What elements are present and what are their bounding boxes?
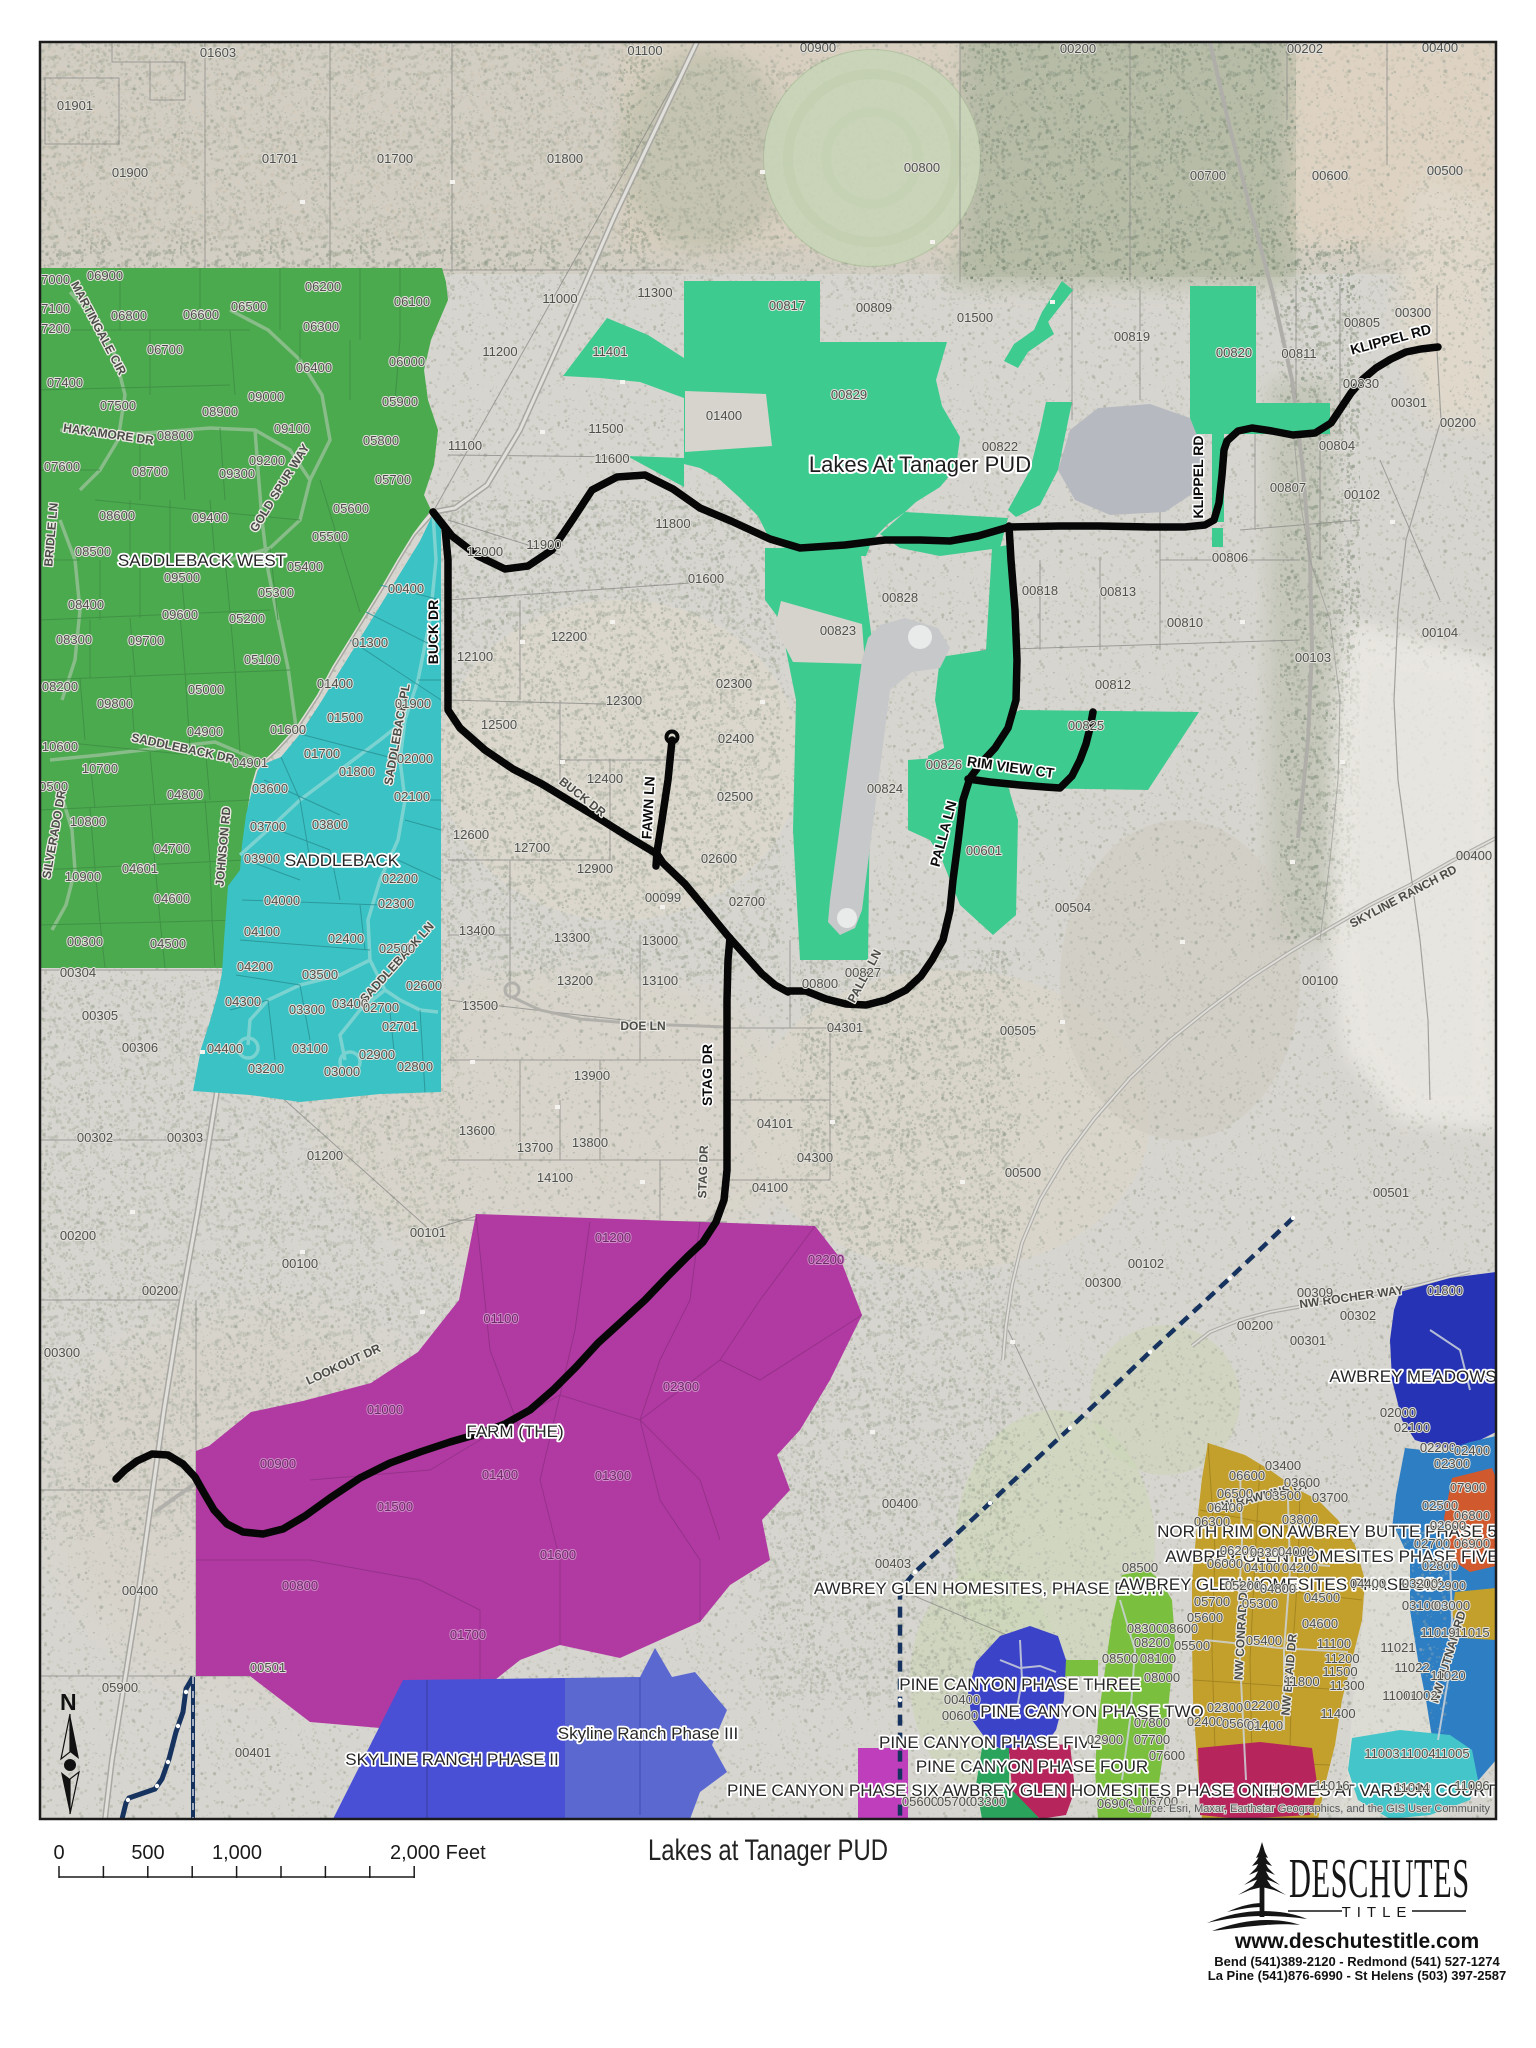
- svg-text:04700: 04700: [154, 841, 190, 856]
- svg-text:01603: 01603: [200, 45, 236, 60]
- svg-text:08900: 08900: [202, 404, 238, 419]
- svg-text:Lakes at Tanager PUD: Lakes at Tanager PUD: [648, 1834, 888, 1867]
- svg-text:01701: 01701: [262, 151, 298, 166]
- svg-text:00500: 00500: [1427, 163, 1463, 178]
- svg-text:00826: 00826: [926, 757, 962, 772]
- svg-text:01100: 01100: [483, 1311, 518, 1326]
- svg-text:12900: 12900: [577, 861, 613, 876]
- svg-text:02400: 02400: [1454, 1443, 1490, 1458]
- svg-text:03700: 03700: [250, 819, 286, 834]
- svg-text:05900: 05900: [102, 1680, 138, 1695]
- svg-text:08800: 08800: [157, 428, 193, 443]
- svg-text:05500: 05500: [312, 529, 348, 544]
- svg-text:04500: 04500: [1304, 1590, 1340, 1605]
- svg-text:10500: 10500: [32, 779, 68, 794]
- svg-text:00306: 00306: [122, 1040, 158, 1055]
- svg-text:13600: 13600: [459, 1123, 495, 1138]
- svg-text:07800: 07800: [1134, 1715, 1170, 1730]
- svg-text:02500: 02500: [717, 789, 753, 804]
- svg-text:00804: 00804: [1319, 438, 1355, 453]
- svg-text:02500: 02500: [379, 941, 415, 956]
- svg-text:00501: 00501: [250, 1660, 286, 1675]
- svg-text:12600: 12600: [453, 827, 489, 842]
- svg-text:07700: 07700: [1134, 1732, 1170, 1747]
- svg-text:01600: 01600: [270, 722, 306, 737]
- svg-text:01300: 01300: [352, 635, 388, 650]
- svg-text:01800: 01800: [547, 151, 583, 166]
- svg-text:03400: 03400: [1265, 1458, 1301, 1473]
- svg-text:01900: 01900: [112, 165, 148, 180]
- svg-text:01200: 01200: [307, 1148, 343, 1163]
- svg-text:02800: 02800: [397, 1059, 433, 1074]
- svg-text:10700: 10700: [82, 761, 118, 776]
- svg-text:09500: 09500: [164, 570, 200, 585]
- svg-text:11800: 11800: [655, 516, 690, 531]
- svg-text:04901: 04901: [232, 755, 268, 770]
- svg-text:FAWN LN: FAWN LN: [638, 776, 657, 840]
- svg-text:06600: 06600: [183, 307, 219, 322]
- svg-text:0: 0: [53, 1842, 64, 1864]
- svg-text:11900: 11900: [526, 537, 561, 552]
- svg-text:11401: 11401: [592, 344, 627, 359]
- svg-text:02300: 02300: [716, 676, 752, 691]
- svg-text:11800: 11800: [1284, 1674, 1319, 1689]
- svg-text:00100: 00100: [1302, 973, 1338, 988]
- svg-text:02400: 02400: [328, 931, 364, 946]
- svg-text:01200: 01200: [595, 1230, 631, 1245]
- svg-text:01400: 01400: [317, 676, 353, 691]
- svg-text:02200: 02200: [1420, 1440, 1456, 1455]
- svg-text:00829: 00829: [831, 387, 867, 402]
- svg-text:00504: 00504: [1055, 900, 1091, 915]
- svg-text:11014: 11014: [1394, 1780, 1429, 1795]
- svg-text:00812: 00812: [1095, 677, 1131, 692]
- svg-text:05600: 05600: [333, 501, 369, 516]
- svg-text:00900: 00900: [260, 1456, 296, 1471]
- svg-text:00600: 00600: [942, 1708, 978, 1723]
- svg-text:09100: 09100: [274, 421, 310, 436]
- svg-text:07400: 07400: [47, 375, 83, 390]
- svg-text:08300: 08300: [56, 632, 92, 647]
- svg-text:00823: 00823: [820, 623, 856, 638]
- svg-text:00800: 00800: [904, 160, 940, 175]
- svg-text:00501: 00501: [1373, 1185, 1409, 1200]
- svg-text:11500: 11500: [588, 421, 623, 436]
- svg-text:00305: 00305: [82, 1008, 118, 1023]
- svg-text:06900: 06900: [1454, 1536, 1490, 1551]
- svg-text:02000: 02000: [1380, 1405, 1416, 1420]
- svg-text:00300: 00300: [1085, 1275, 1121, 1290]
- svg-text:11500: 11500: [1322, 1664, 1357, 1679]
- svg-text:02900: 02900: [1087, 1732, 1123, 1747]
- svg-text:11100: 11100: [448, 438, 482, 453]
- svg-text:00099: 00099: [645, 890, 681, 905]
- svg-text:PINE CANYON PHASE FIVE: PINE CANYON PHASE FIVE: [879, 1733, 1101, 1752]
- svg-text:02700: 02700: [729, 894, 765, 909]
- svg-text:10900: 10900: [65, 869, 101, 884]
- svg-text:13900: 13900: [574, 1068, 610, 1083]
- svg-text:00200: 00200: [1237, 1318, 1273, 1333]
- svg-text:01500: 01500: [327, 710, 363, 725]
- svg-text:00830: 00830: [1343, 376, 1379, 391]
- svg-text:00817: 00817: [769, 298, 805, 313]
- svg-text:01600: 01600: [688, 571, 724, 586]
- svg-text:00200: 00200: [1440, 415, 1476, 430]
- svg-text:05200: 05200: [229, 611, 265, 626]
- svg-text:05000: 05000: [188, 682, 224, 697]
- svg-text:06800: 06800: [1454, 1508, 1490, 1523]
- svg-text:11022: 11022: [1394, 1660, 1429, 1675]
- svg-text:00600: 00600: [1312, 168, 1348, 183]
- svg-text:08200: 08200: [42, 679, 78, 694]
- svg-text:TITLE: TITLE: [1342, 1904, 1413, 1921]
- svg-text:05200: 05200: [1225, 1578, 1261, 1593]
- svg-text:00810: 00810: [1167, 615, 1203, 630]
- svg-text:04300: 04300: [225, 994, 261, 1009]
- svg-text:03500: 03500: [302, 967, 338, 982]
- svg-text:04600: 04600: [1302, 1616, 1338, 1631]
- svg-text:00103: 00103: [1295, 650, 1331, 665]
- svg-text:N: N: [60, 1689, 77, 1715]
- svg-text:05800: 05800: [363, 433, 399, 448]
- svg-text:08500: 08500: [75, 544, 111, 559]
- svg-text:00400: 00400: [882, 1496, 918, 1511]
- svg-text:DESCHUTES: DESCHUTES: [1289, 1847, 1470, 1909]
- svg-text:00301: 00301: [1391, 395, 1427, 410]
- svg-text:00304: 00304: [60, 965, 96, 980]
- svg-text:FARM (THE): FARM (THE): [466, 1422, 563, 1441]
- svg-text:05700: 05700: [937, 1794, 973, 1809]
- svg-text:00300: 00300: [1395, 305, 1431, 320]
- svg-text:03200: 03200: [248, 1061, 284, 1076]
- svg-text:00303: 00303: [167, 1130, 203, 1145]
- svg-text:00309: 00309: [1297, 1285, 1333, 1300]
- svg-text:00102: 00102: [1128, 1256, 1164, 1271]
- svg-text:03000: 03000: [324, 1064, 360, 1079]
- svg-text:00818: 00818: [1022, 583, 1058, 598]
- svg-text:07600: 07600: [1149, 1748, 1185, 1763]
- svg-text:03600: 03600: [252, 781, 288, 796]
- svg-text:Bend (541)389-2120 - Redmond (: Bend (541)389-2120 - Redmond (541) 527-1…: [1214, 1954, 1500, 1969]
- svg-text:11200: 11200: [482, 344, 517, 359]
- svg-text:00700: 00700: [1190, 168, 1226, 183]
- svg-text:08300: 08300: [1127, 1621, 1163, 1636]
- svg-text:00400: 00400: [388, 581, 424, 596]
- svg-text:02800: 02800: [1422, 1558, 1458, 1573]
- svg-text:13300: 13300: [554, 930, 590, 945]
- svg-text:00500: 00500: [1005, 1165, 1041, 1180]
- svg-text:03200: 03200: [1402, 1576, 1438, 1591]
- svg-text:SADDLEBACK WEST: SADDLEBACK WEST: [118, 551, 286, 570]
- svg-text:11019: 11019: [1420, 1625, 1455, 1640]
- svg-text:www.deschutestitle.com: www.deschutestitle.com: [1234, 1930, 1479, 1953]
- svg-text:STAG DR: STAG DR: [699, 1044, 715, 1106]
- svg-text:06100: 06100: [394, 294, 430, 309]
- svg-text:11001: 11001: [1382, 1688, 1417, 1703]
- svg-text:00828: 00828: [882, 590, 918, 605]
- svg-text:11006: 11006: [1454, 1778, 1489, 1793]
- svg-text:00505: 00505: [1000, 1023, 1036, 1038]
- svg-text:02600: 02600: [406, 978, 442, 993]
- svg-text:05300: 05300: [258, 585, 294, 600]
- svg-text:00102: 00102: [1344, 487, 1380, 502]
- svg-text:02500: 02500: [1422, 1498, 1458, 1513]
- svg-text:2,000 Feet: 2,000 Feet: [390, 1842, 486, 1864]
- svg-text:09400: 09400: [192, 510, 228, 525]
- svg-text:00400: 00400: [122, 1583, 158, 1598]
- svg-text:01400: 01400: [482, 1467, 518, 1482]
- svg-text:13700: 13700: [517, 1140, 553, 1155]
- svg-text:STAG DR: STAG DR: [695, 1145, 711, 1199]
- svg-text:00300: 00300: [44, 1345, 80, 1360]
- svg-text:13500: 13500: [462, 998, 498, 1013]
- svg-text:00100: 00100: [282, 1256, 318, 1271]
- svg-text:02200: 02200: [382, 871, 418, 886]
- svg-text:01300: 01300: [595, 1468, 631, 1483]
- svg-text:06000: 06000: [389, 354, 425, 369]
- svg-text:PINE CANYON PHASE TWO: PINE CANYON PHASE TWO: [980, 1702, 1204, 1721]
- svg-text:00300: 00300: [67, 934, 103, 949]
- svg-text:04100: 04100: [1244, 1560, 1280, 1575]
- svg-text:04301: 04301: [827, 1020, 863, 1035]
- svg-text:02701: 02701: [382, 1019, 418, 1034]
- svg-text:06400: 06400: [1207, 1500, 1243, 1515]
- svg-text:05400: 05400: [1246, 1633, 1282, 1648]
- svg-text:14100: 14100: [537, 1170, 573, 1185]
- svg-text:11004: 11004: [1400, 1746, 1435, 1761]
- svg-text:00811: 00811: [1281, 346, 1316, 361]
- svg-text:Source: Esri, Maxar, Earthstar: Source: Esri, Maxar, Earthstar Geographi…: [1128, 1803, 1490, 1815]
- svg-text:06200: 06200: [305, 279, 341, 294]
- svg-text:13400: 13400: [459, 923, 495, 938]
- svg-text:06300: 06300: [303, 319, 339, 334]
- svg-text:04600: 04600: [154, 891, 190, 906]
- svg-text:02700: 02700: [363, 1000, 399, 1015]
- svg-text:03900: 03900: [244, 851, 280, 866]
- svg-text:00824: 00824: [867, 781, 903, 796]
- svg-text:00805: 00805: [1344, 315, 1380, 330]
- svg-text:01700: 01700: [304, 746, 340, 761]
- svg-text:06800: 06800: [111, 308, 147, 323]
- svg-text:05500: 05500: [1174, 1638, 1210, 1653]
- svg-text:KLIPPEL RD: KLIPPEL RD: [1190, 436, 1206, 519]
- svg-text:08100: 08100: [1140, 1651, 1176, 1666]
- svg-text:02700: 02700: [1414, 1536, 1450, 1551]
- svg-text:04900: 04900: [187, 724, 223, 739]
- svg-text:SADDLEBACK: SADDLEBACK: [285, 851, 400, 870]
- svg-text:06900: 06900: [87, 268, 123, 283]
- svg-text:00806: 00806: [1212, 550, 1248, 565]
- svg-text:00302: 00302: [77, 1130, 113, 1145]
- svg-text:00400: 00400: [944, 1692, 980, 1707]
- svg-text:PINE CANYON PHASE FOUR: PINE CANYON PHASE FOUR: [916, 1757, 1148, 1776]
- svg-text:06600: 06600: [1229, 1468, 1265, 1483]
- svg-text:12500: 12500: [481, 717, 517, 732]
- svg-text:08700: 08700: [132, 464, 168, 479]
- svg-text:06500: 06500: [231, 299, 267, 314]
- svg-text:11005: 11005: [1434, 1746, 1469, 1761]
- svg-text:11015: 11015: [1454, 1625, 1489, 1640]
- svg-text:01900: 01900: [395, 696, 431, 711]
- svg-text:11000: 11000: [542, 291, 577, 306]
- svg-text:09300: 09300: [219, 466, 255, 481]
- svg-text:11300: 11300: [1329, 1678, 1364, 1693]
- svg-text:01800: 01800: [339, 764, 375, 779]
- svg-text:00104: 00104: [1422, 625, 1458, 640]
- svg-text:Lakes At Tanager PUD: Lakes At Tanager PUD: [809, 452, 1031, 477]
- svg-text:04400: 04400: [1350, 1576, 1386, 1591]
- svg-text:11100: 11100: [1317, 1636, 1351, 1651]
- svg-text:08000: 08000: [1144, 1670, 1180, 1685]
- svg-text:04800: 04800: [1260, 1581, 1296, 1596]
- svg-text:09600: 09600: [162, 607, 198, 622]
- svg-text:04100: 04100: [244, 924, 280, 939]
- svg-text:00400: 00400: [1456, 848, 1492, 863]
- svg-text:11003: 11003: [1364, 1746, 1399, 1761]
- svg-text:02400: 02400: [1187, 1714, 1223, 1729]
- svg-text:03300: 03300: [289, 1002, 325, 1017]
- svg-text:05300: 05300: [1242, 1596, 1278, 1611]
- svg-text:06500: 06500: [1217, 1486, 1253, 1501]
- svg-text:00820: 00820: [1216, 345, 1252, 360]
- svg-text:05900: 05900: [382, 394, 418, 409]
- svg-text:03500: 03500: [1265, 1488, 1301, 1503]
- svg-text:00800: 00800: [802, 976, 838, 991]
- svg-text:06700: 06700: [147, 342, 183, 357]
- svg-text:02200: 02200: [1244, 1698, 1280, 1713]
- svg-text:SKYLINE RANCH PHASE II: SKYLINE RANCH PHASE II: [345, 1750, 559, 1769]
- svg-text:03800: 03800: [1282, 1512, 1318, 1527]
- svg-text:02400: 02400: [718, 731, 754, 746]
- svg-text:00302: 00302: [1340, 1308, 1376, 1323]
- svg-text:05600: 05600: [1187, 1610, 1223, 1625]
- svg-text:00827: 00827: [845, 965, 881, 980]
- svg-text:03100: 03100: [1402, 1598, 1438, 1613]
- svg-text:00200: 00200: [60, 1228, 96, 1243]
- svg-text:10600: 10600: [42, 739, 78, 754]
- svg-text:500: 500: [131, 1842, 164, 1864]
- svg-text:00825: 00825: [1068, 718, 1104, 733]
- svg-text:11400: 11400: [1320, 1706, 1355, 1721]
- svg-text:12200: 12200: [551, 629, 587, 644]
- svg-text:02300: 02300: [1207, 1700, 1243, 1715]
- svg-text:08500: 08500: [1122, 1560, 1158, 1575]
- svg-text:05400: 05400: [287, 559, 323, 574]
- svg-text:03700: 03700: [1312, 1490, 1348, 1505]
- svg-text:04601: 04601: [122, 861, 158, 876]
- svg-text:05700: 05700: [375, 472, 411, 487]
- svg-text:DOE LN: DOE LN: [620, 1019, 665, 1033]
- svg-text:01600: 01600: [540, 1547, 576, 1562]
- svg-text:12700: 12700: [514, 840, 550, 855]
- svg-text:AWBREY GLEN HOMESITES, PHASE E: AWBREY GLEN HOMESITES, PHASE EIGHT: [814, 1579, 1166, 1598]
- svg-text:08200: 08200: [1134, 1635, 1170, 1650]
- svg-text:09800: 09800: [97, 696, 133, 711]
- svg-text:07900: 07900: [1450, 1480, 1486, 1495]
- svg-text:01700: 01700: [377, 151, 413, 166]
- svg-text:11021: 11021: [1380, 1640, 1415, 1655]
- svg-text:03300: 03300: [970, 1794, 1006, 1809]
- svg-text:11300: 11300: [637, 285, 672, 300]
- svg-text:03800: 03800: [312, 817, 348, 832]
- svg-text:02100: 02100: [1394, 1420, 1430, 1435]
- svg-text:06400: 06400: [296, 360, 332, 375]
- svg-text:05700: 05700: [1194, 1594, 1230, 1609]
- svg-text:BUCK DR: BUCK DR: [425, 600, 441, 665]
- svg-text:05600: 05600: [902, 1794, 938, 1809]
- svg-text:03000: 03000: [1434, 1598, 1470, 1613]
- svg-text:04800: 04800: [167, 787, 203, 802]
- svg-text:10800: 10800: [70, 814, 106, 829]
- svg-text:04000: 04000: [264, 893, 300, 908]
- svg-text:04100: 04100: [752, 1180, 788, 1195]
- svg-text:08400: 08400: [68, 597, 104, 612]
- svg-text:Skyline Ranch Phase III: Skyline Ranch Phase III: [558, 1724, 738, 1743]
- svg-text:13200: 13200: [557, 973, 593, 988]
- svg-text:08600: 08600: [99, 508, 135, 523]
- svg-text:01400: 01400: [1247, 1718, 1283, 1733]
- svg-text:03100: 03100: [292, 1041, 328, 1056]
- svg-text:01700: 01700: [450, 1627, 486, 1642]
- svg-text:04500: 04500: [150, 936, 186, 951]
- svg-text:01800: 01800: [1427, 1283, 1463, 1298]
- svg-text:00401: 00401: [235, 1745, 271, 1760]
- svg-text:13000: 13000: [642, 933, 678, 948]
- svg-text:04000: 04000: [1278, 1544, 1314, 1559]
- svg-text:00601: 00601: [966, 843, 1002, 858]
- svg-text:13800: 13800: [572, 1135, 608, 1150]
- svg-text:06300: 06300: [1194, 1514, 1230, 1529]
- svg-text:02200: 02200: [808, 1252, 844, 1267]
- svg-text:02600: 02600: [701, 851, 737, 866]
- svg-text:01500: 01500: [957, 310, 993, 325]
- svg-text:00819: 00819: [1114, 329, 1150, 344]
- svg-text:00101: 00101: [410, 1225, 446, 1240]
- svg-text:1,000: 1,000: [212, 1842, 262, 1864]
- svg-text:06000: 06000: [1207, 1556, 1243, 1571]
- svg-text:04200: 04200: [1282, 1560, 1318, 1575]
- svg-text:01100: 01100: [627, 43, 662, 58]
- svg-text:02000: 02000: [397, 751, 433, 766]
- svg-text:02300: 02300: [1434, 1456, 1470, 1471]
- svg-text:04200: 04200: [237, 959, 273, 974]
- svg-text:04101: 04101: [757, 1116, 793, 1131]
- svg-text:04400: 04400: [207, 1041, 243, 1056]
- svg-text:01000: 01000: [367, 1402, 403, 1417]
- svg-text:09000: 09000: [248, 389, 284, 404]
- svg-text:02100: 02100: [394, 789, 430, 804]
- svg-text:07500: 07500: [100, 398, 136, 413]
- svg-text:11600: 11600: [594, 451, 629, 466]
- svg-text:00800: 00800: [282, 1578, 318, 1593]
- svg-text:12400: 12400: [587, 771, 623, 786]
- svg-text:12300: 12300: [606, 693, 642, 708]
- svg-text:02300: 02300: [378, 896, 414, 911]
- svg-text:00809: 00809: [856, 300, 892, 315]
- svg-text:04300: 04300: [797, 1150, 833, 1165]
- svg-text:11016: 11016: [1314, 1778, 1349, 1793]
- svg-text:02300: 02300: [663, 1379, 699, 1394]
- svg-text:01500: 01500: [377, 1499, 413, 1514]
- svg-text:12100: 12100: [457, 649, 493, 664]
- svg-text:12000: 12000: [467, 544, 503, 559]
- svg-text:La Pine (541)876-6990 - St Hel: La Pine (541)876-6990 - St Helens (503) …: [1208, 1968, 1506, 1983]
- svg-text:08500: 08500: [1102, 1651, 1138, 1666]
- svg-text:07600: 07600: [44, 459, 80, 474]
- svg-text:PINE CANYON PHASE THREE: PINE CANYON PHASE THREE: [899, 1675, 1141, 1694]
- svg-text:11020: 11020: [1430, 1668, 1465, 1683]
- svg-text:01400: 01400: [706, 408, 742, 423]
